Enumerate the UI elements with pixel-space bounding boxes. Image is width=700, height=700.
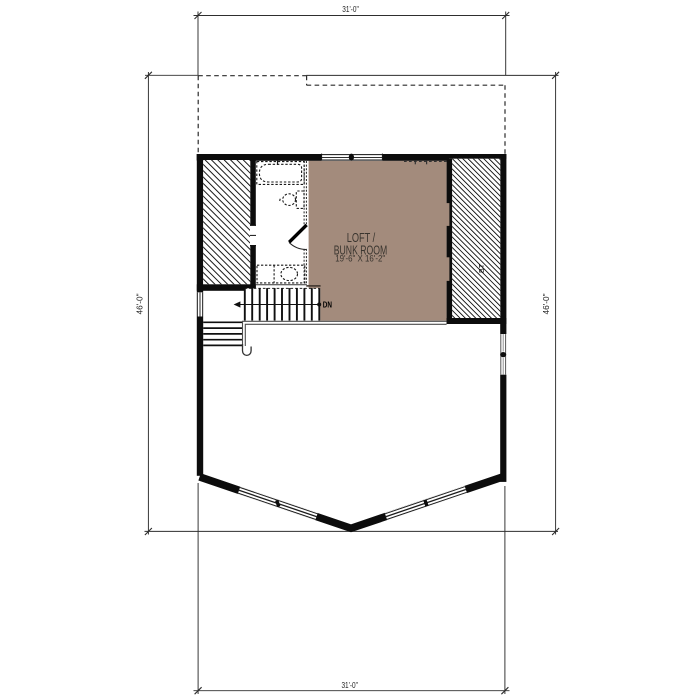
svg-text:46'-0": 46'-0" <box>541 294 551 315</box>
svg-text:BT: BT <box>477 263 486 273</box>
svg-text:46'-0": 46'-0" <box>135 294 145 315</box>
svg-text:31'-0": 31'-0" <box>342 5 359 14</box>
svg-text:DN: DN <box>323 300 332 310</box>
svg-text:19'-6" X 16'-2": 19'-6" X 16'-2" <box>335 253 385 264</box>
svg-text:31'-0": 31'-0" <box>341 681 358 690</box>
